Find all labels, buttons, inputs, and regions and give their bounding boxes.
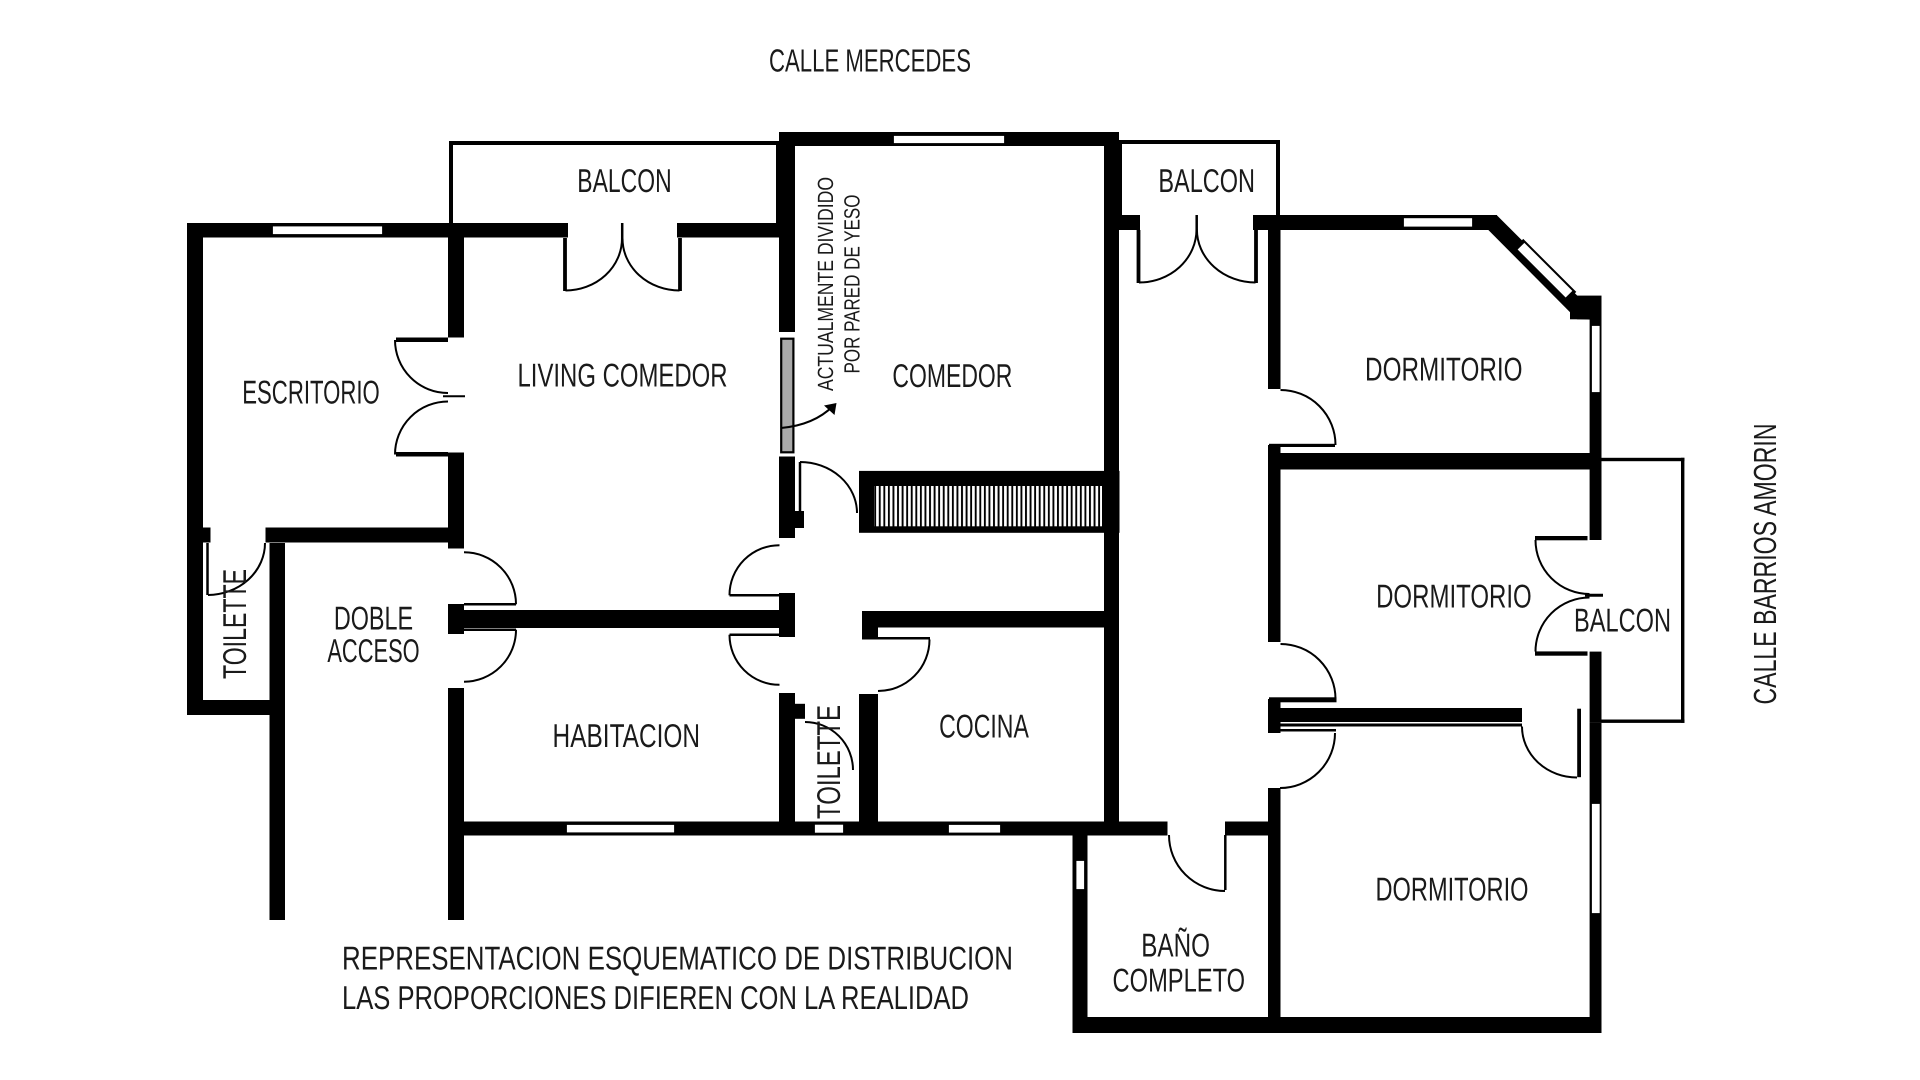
svg-text:LIVING COMEDOR: LIVING COMEDOR (518, 357, 728, 394)
svg-text:HABITACION: HABITACION (553, 717, 701, 754)
svg-text:TOILETTE: TOILETTE (810, 705, 847, 819)
svg-text:COMEDOR: COMEDOR (892, 357, 1012, 394)
svg-text:LAS PROPORCIONES DIFIEREN CON: LAS PROPORCIONES DIFIEREN CON LA REALIDA… (342, 979, 969, 1016)
svg-text:BALCON: BALCON (577, 162, 671, 199)
svg-text:CALLE BARRIOS AMORIN: CALLE BARRIOS AMORIN (1747, 424, 1783, 705)
svg-text:ESCRITORIO: ESCRITORIO (242, 374, 380, 411)
svg-text:DOBLE: DOBLE (334, 600, 413, 637)
svg-text:ACTUALMENTE DIVIDIDO: ACTUALMENTE DIVIDIDO (813, 177, 838, 391)
svg-text:DORMITORIO: DORMITORIO (1365, 351, 1523, 388)
svg-text:DORMITORIO: DORMITORIO (1376, 578, 1532, 615)
svg-text:CALLE MERCEDES: CALLE MERCEDES (769, 43, 971, 79)
svg-text:COCINA: COCINA (939, 708, 1029, 745)
svg-text:DORMITORIO: DORMITORIO (1376, 871, 1529, 908)
svg-text:TOILETTE: TOILETTE (216, 569, 253, 679)
svg-text:BALCON: BALCON (1574, 602, 1671, 639)
svg-text:REPRESENTACION ESQUEMATICO DE: REPRESENTACION ESQUEMATICO DE DISTRIBUCI… (342, 940, 1013, 977)
svg-text:ACCESO: ACCESO (327, 632, 419, 669)
svg-text:BALCON: BALCON (1158, 162, 1255, 199)
svg-text:COMPLETO: COMPLETO (1113, 962, 1246, 999)
svg-text:BAÑO: BAÑO (1141, 927, 1210, 964)
svg-text:POR PARED DE YESO: POR PARED DE YESO (840, 195, 865, 374)
